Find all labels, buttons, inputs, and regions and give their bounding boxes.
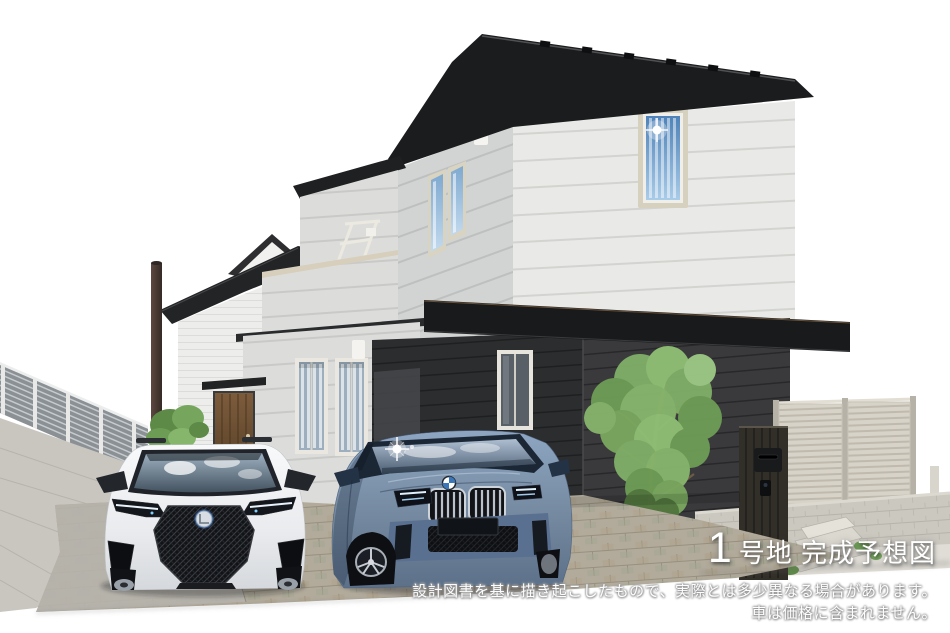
roundel-badge — [443, 477, 456, 490]
living-window-1 — [295, 358, 328, 454]
brand-badge — [195, 510, 213, 528]
car-blue-suv — [332, 431, 572, 595]
rear-wheel — [536, 549, 560, 578]
car-white-suv — [96, 437, 316, 597]
disclaimer-line-1: 設計図書を基に描き起こしたもので、実際とは多少異なる場合があります。 — [412, 581, 937, 603]
roof-rail-right — [242, 437, 272, 442]
wall-lamp-lower — [352, 340, 365, 359]
headlight-right — [512, 485, 542, 500]
lot-caption-label: 号地 完成予想図 — [739, 540, 936, 566]
mailbox — [754, 448, 782, 472]
roof-rail-left — [136, 438, 166, 443]
living-window-2 — [335, 358, 368, 456]
antenna-box — [366, 228, 376, 236]
side-window — [497, 350, 533, 430]
license-plate — [438, 518, 498, 535]
narrow-window-1 — [428, 169, 446, 258]
bedroom-window — [638, 108, 688, 208]
rendering-page: 1 号地 完成予想図 設計図書を基に描き起こしたもので、実際とは多少異なる場合が… — [0, 0, 950, 633]
narrow-window-2 — [448, 161, 466, 242]
intercom — [760, 480, 771, 496]
lot-caption: 1 号地 完成予想図 — [708, 527, 936, 570]
front-left-wheel — [346, 532, 396, 586]
disclaimer-line-2: 車は価格に含まれません。 — [412, 603, 937, 625]
lot-number: 1 — [708, 527, 732, 570]
disclaimer: 設計図書を基に描き起こしたもので、実際とは多少異なる場合があります。 車は価格に… — [412, 581, 937, 624]
